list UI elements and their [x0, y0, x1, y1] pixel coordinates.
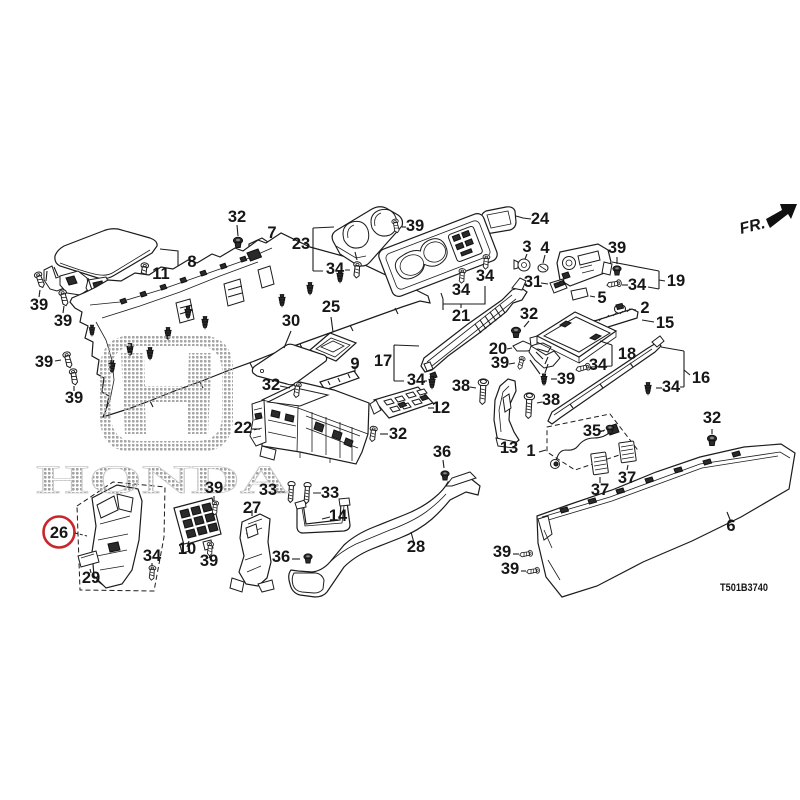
svg-text:T501B3740: T501B3740 — [720, 582, 768, 594]
svg-text:11: 11 — [152, 265, 169, 283]
svg-text:8: 8 — [187, 253, 196, 271]
svg-text:31: 31 — [524, 273, 542, 291]
svg-text:34: 34 — [662, 378, 681, 396]
svg-text:10: 10 — [178, 540, 196, 558]
svg-text:32: 32 — [703, 409, 721, 427]
svg-text:13: 13 — [500, 439, 518, 457]
svg-text:5: 5 — [597, 289, 606, 307]
svg-text:32: 32 — [389, 425, 407, 443]
svg-text:18: 18 — [618, 345, 636, 363]
svg-text:4: 4 — [540, 239, 550, 257]
svg-text:34: 34 — [452, 281, 471, 299]
svg-text:39: 39 — [54, 312, 72, 330]
svg-text:39: 39 — [491, 354, 509, 372]
svg-text:32: 32 — [262, 376, 280, 394]
svg-text:39: 39 — [30, 296, 48, 314]
svg-text:32: 32 — [228, 208, 246, 226]
svg-text:39: 39 — [493, 543, 511, 561]
svg-text:32: 32 — [520, 305, 538, 323]
svg-text:37: 37 — [591, 481, 609, 499]
svg-text:15: 15 — [656, 314, 674, 332]
svg-text:36: 36 — [433, 443, 451, 461]
svg-text:34: 34 — [476, 267, 495, 285]
svg-text:37: 37 — [618, 469, 636, 487]
svg-text:17: 17 — [374, 352, 392, 370]
svg-text:29: 29 — [82, 569, 100, 587]
svg-text:FR.: FR. — [738, 215, 767, 238]
svg-text:HONDA: HONDA — [36, 457, 289, 502]
svg-text:27: 27 — [243, 499, 261, 517]
svg-text:39: 39 — [65, 389, 83, 407]
svg-text:38: 38 — [452, 377, 470, 395]
svg-text:26: 26 — [50, 524, 68, 542]
svg-text:19: 19 — [667, 272, 685, 290]
svg-text:23: 23 — [292, 235, 310, 253]
svg-text:6: 6 — [726, 517, 735, 535]
svg-text:9: 9 — [350, 355, 359, 373]
svg-text:25: 25 — [322, 298, 340, 316]
svg-text:34: 34 — [589, 356, 608, 374]
svg-text:22: 22 — [234, 419, 252, 437]
svg-text:1: 1 — [526, 442, 535, 460]
svg-text:39: 39 — [205, 479, 223, 497]
svg-text:38: 38 — [542, 391, 560, 409]
svg-text:30: 30 — [282, 312, 300, 330]
svg-text:16: 16 — [692, 369, 710, 387]
svg-text:21: 21 — [452, 307, 470, 325]
svg-text:39: 39 — [557, 370, 575, 388]
svg-text:14: 14 — [329, 507, 348, 525]
svg-text:33: 33 — [259, 481, 277, 499]
svg-text:39: 39 — [608, 239, 626, 257]
svg-text:34: 34 — [143, 547, 162, 565]
svg-text:24: 24 — [531, 210, 550, 228]
svg-text:36: 36 — [272, 548, 290, 566]
svg-text:34: 34 — [628, 276, 647, 294]
svg-text:28: 28 — [407, 538, 425, 556]
svg-text:39: 39 — [501, 560, 519, 578]
svg-text:39: 39 — [200, 552, 218, 570]
svg-text:39: 39 — [406, 217, 424, 235]
svg-text:34: 34 — [326, 260, 345, 278]
svg-text:7: 7 — [267, 224, 276, 242]
svg-text:2: 2 — [640, 299, 649, 317]
svg-text:12: 12 — [432, 399, 450, 417]
svg-text:33: 33 — [321, 484, 339, 502]
svg-text:3: 3 — [522, 238, 531, 256]
svg-text:34: 34 — [407, 371, 426, 389]
svg-text:39: 39 — [35, 353, 53, 371]
svg-text:35: 35 — [583, 422, 601, 440]
